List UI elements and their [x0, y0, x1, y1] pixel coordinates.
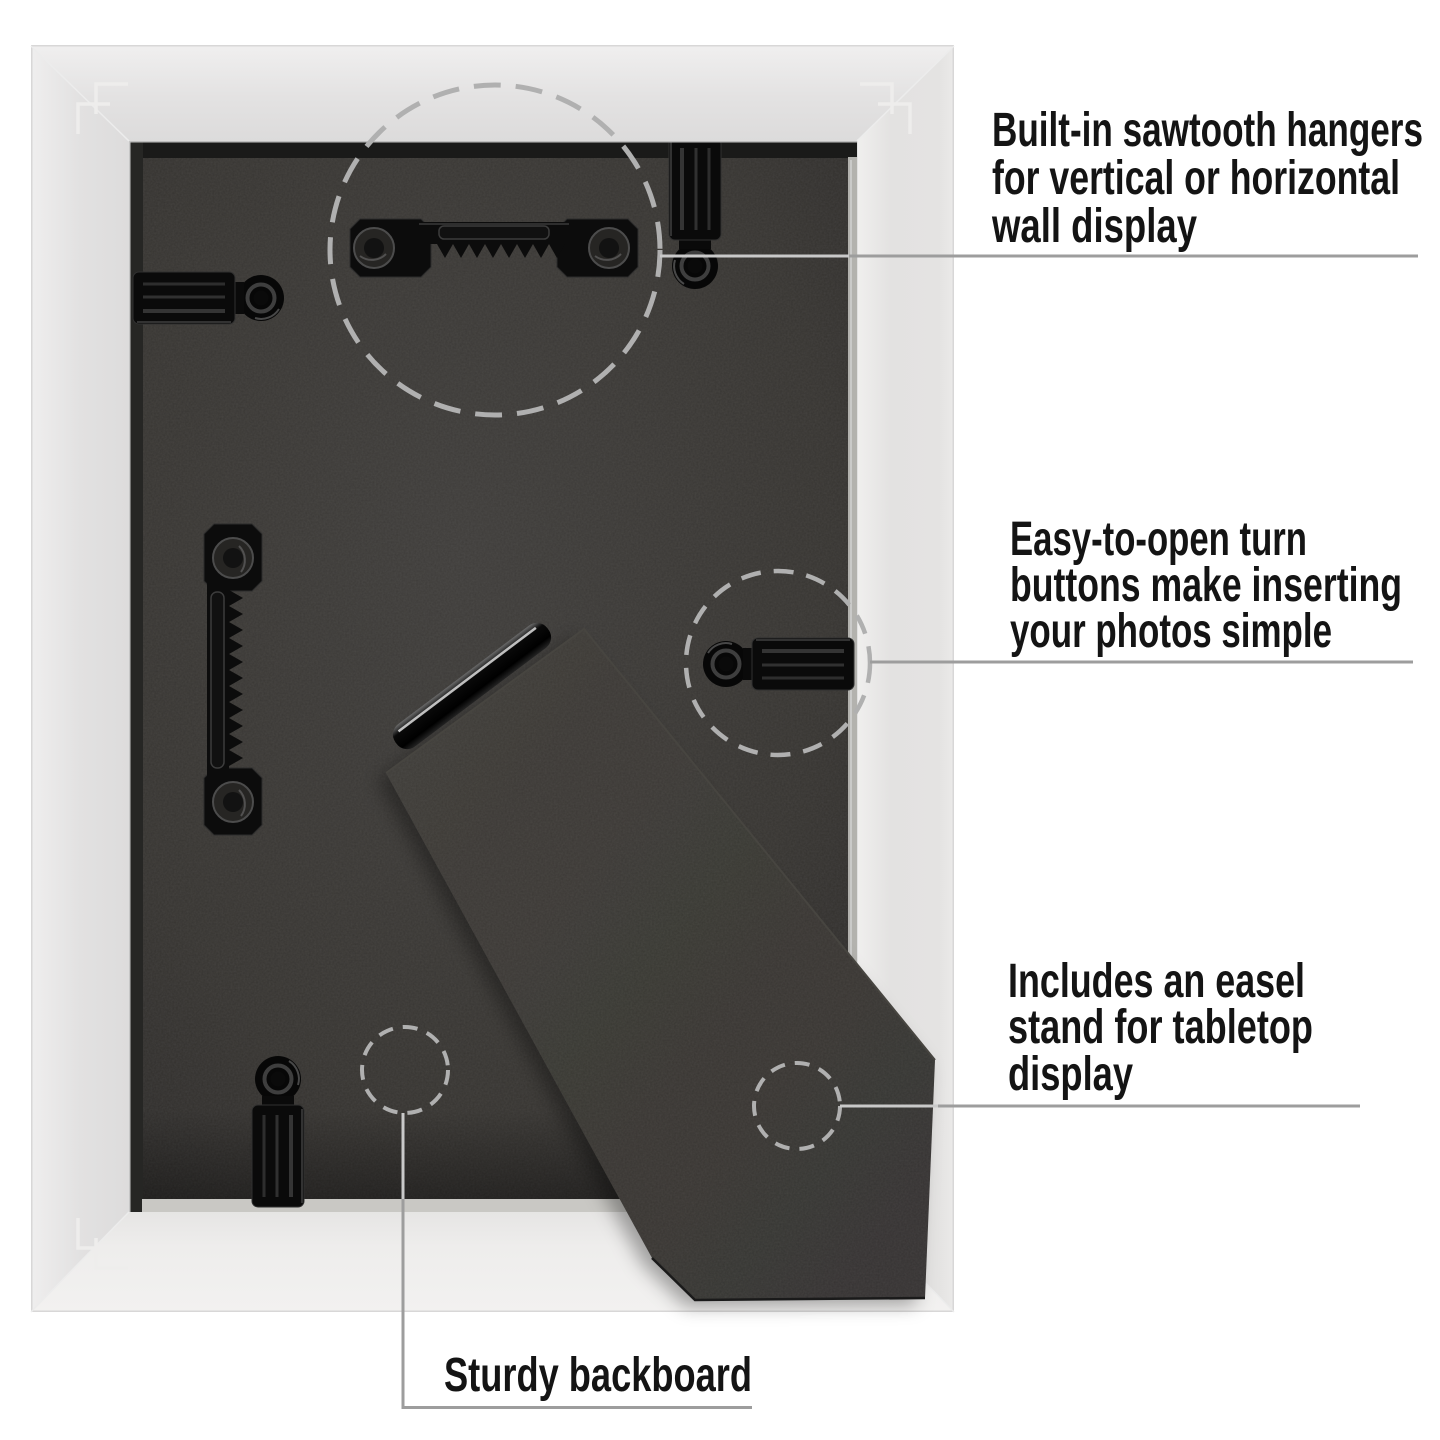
- svg-text:wall display: wall display: [991, 200, 1197, 253]
- svg-text:display: display: [1008, 1048, 1133, 1101]
- svg-text:Sturdy backboard: Sturdy backboard: [444, 1349, 752, 1402]
- svg-text:stand for tabletop: stand for tabletop: [1008, 1001, 1313, 1054]
- svg-text:for vertical or horizontal: for vertical or horizontal: [992, 152, 1400, 205]
- svg-text:your photos simple: your photos simple: [1010, 605, 1332, 658]
- svg-text:Built-in sawtooth hangers: Built-in sawtooth hangers: [992, 104, 1423, 157]
